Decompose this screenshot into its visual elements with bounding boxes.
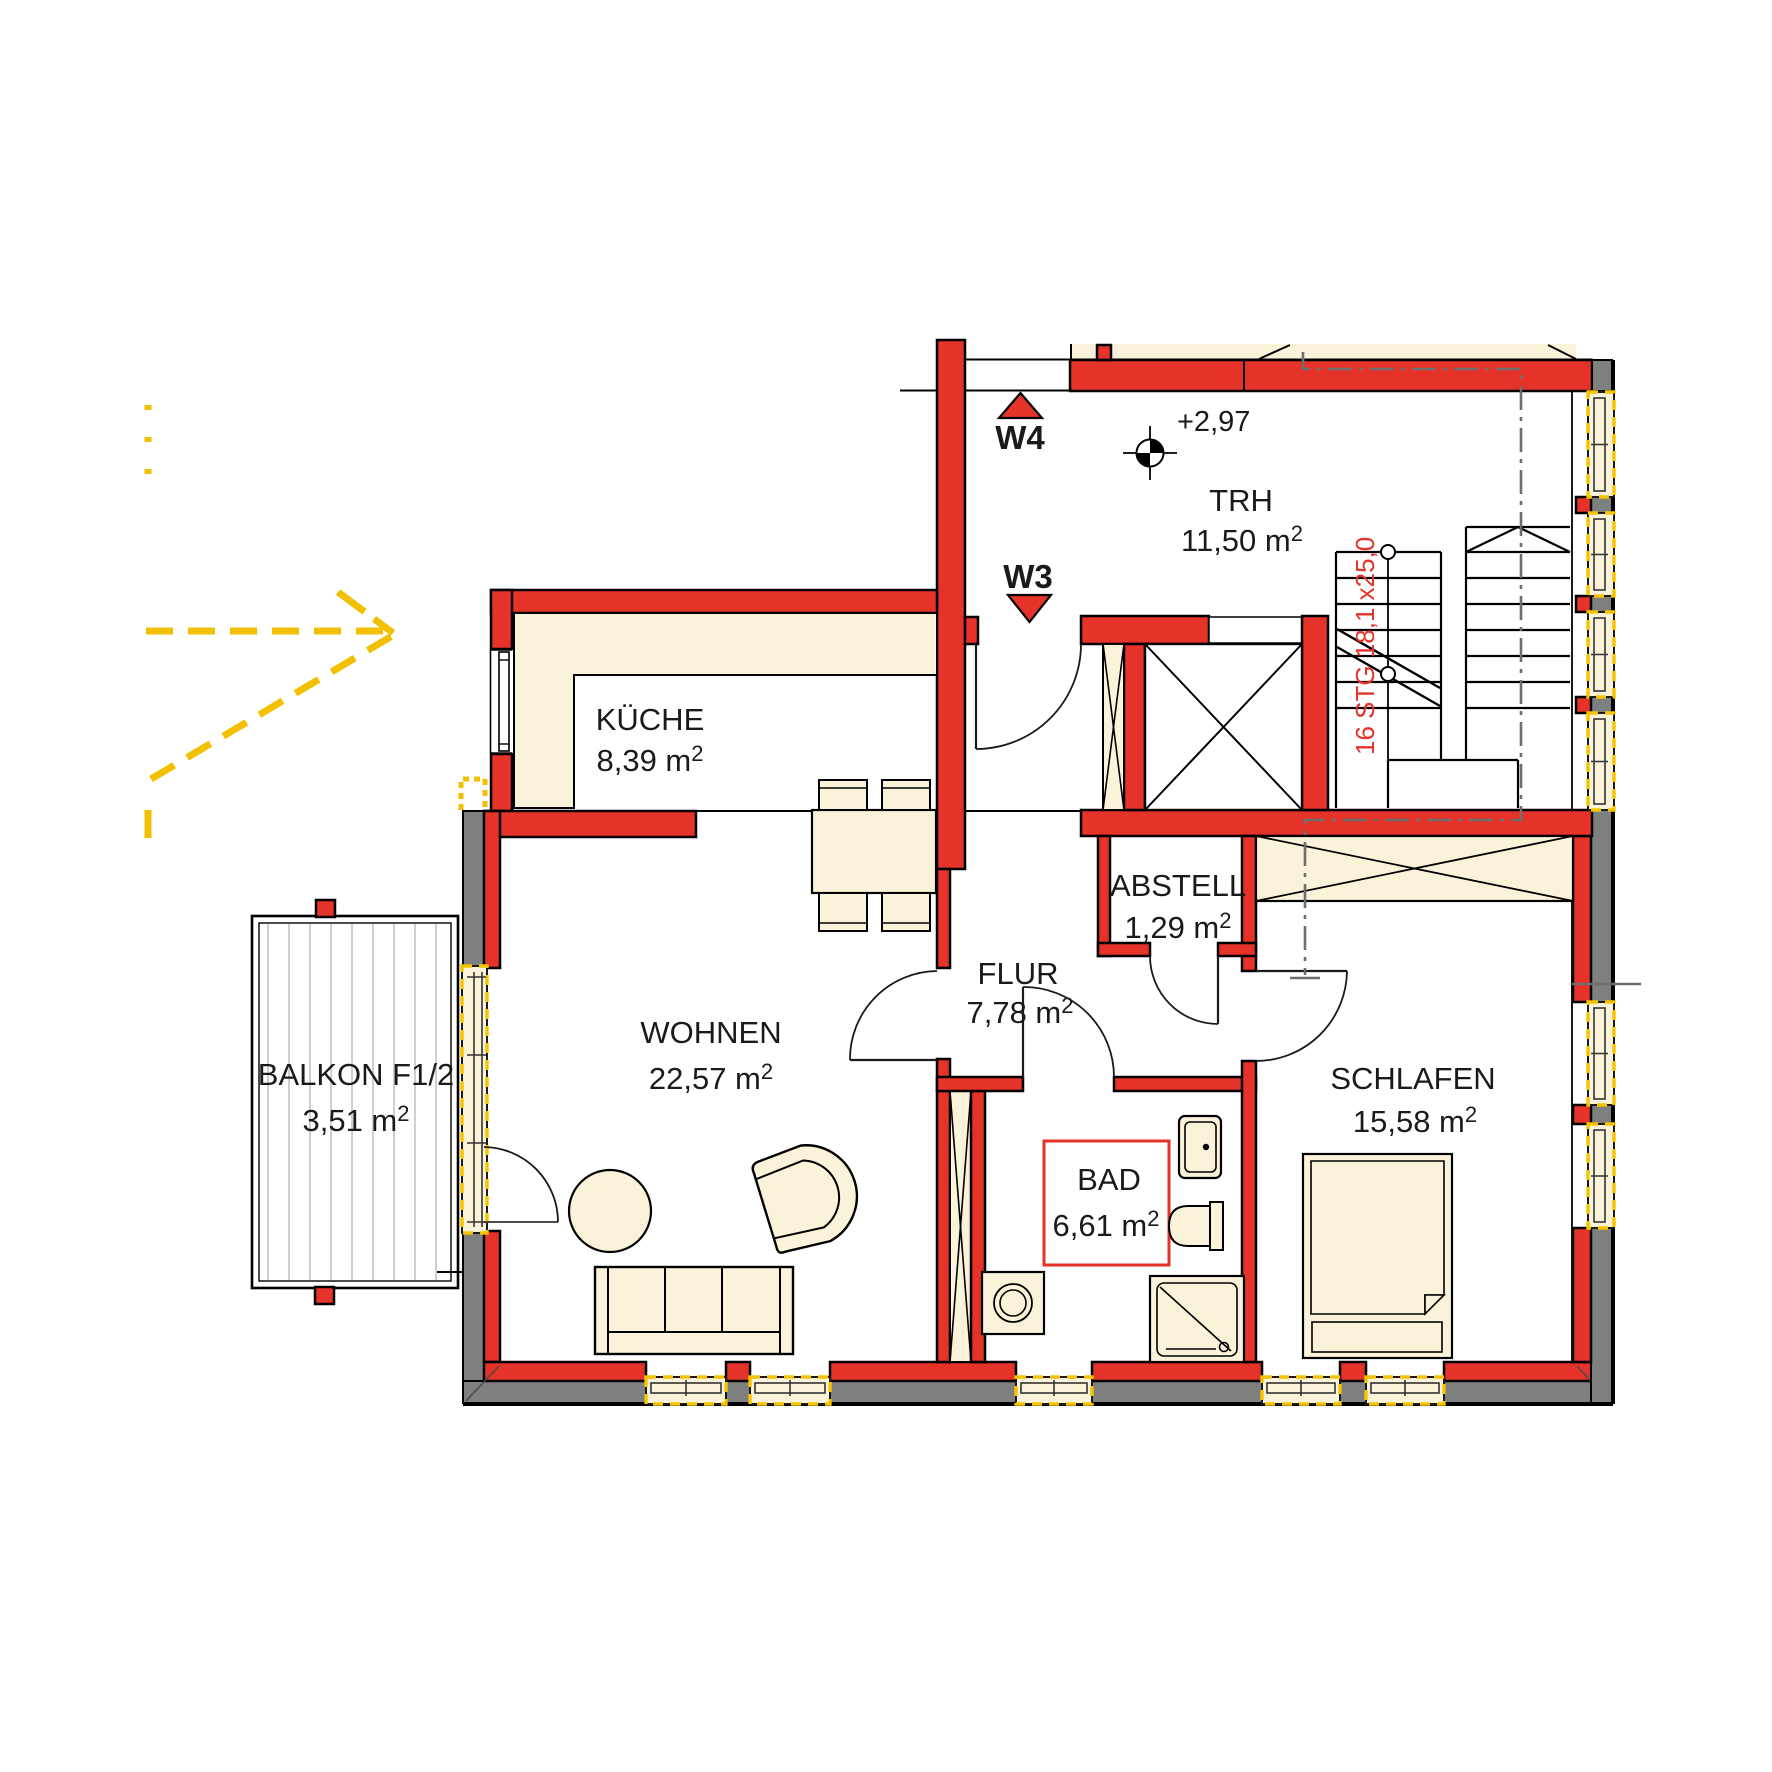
svg-text:WOHNEN: WOHNEN [640,1015,781,1050]
svg-text:1,29 m2: 1,29 m2 [1124,908,1231,945]
svg-text:3,51 m2: 3,51 m2 [302,1101,409,1138]
svg-text:11,50 m2: 11,50 m2 [1181,521,1303,558]
svg-text:KÜCHE: KÜCHE [596,702,705,737]
svg-text:TRH: TRH [1209,483,1273,518]
svg-text:7,78 m2: 7,78 m2 [966,993,1073,1030]
svg-text:16 STG 18,1 x25,0: 16 STG 18,1 x25,0 [1350,537,1380,755]
svg-text:15,58 m2: 15,58 m2 [1353,1102,1477,1139]
svg-text:FLUR: FLUR [978,956,1059,991]
svg-text:W4: W4 [995,419,1045,456]
svg-text:6,61 m2: 6,61 m2 [1052,1206,1159,1243]
svg-text:22,57 m2: 22,57 m2 [649,1059,773,1096]
svg-text:ABSTELL: ABSTELL [1110,868,1246,903]
svg-text:+2,97: +2,97 [1177,406,1250,438]
svg-text:8,39 m2: 8,39 m2 [596,741,703,778]
svg-text:SCHLAFEN: SCHLAFEN [1330,1061,1495,1096]
svg-text:W3: W3 [1003,558,1053,595]
svg-text:BALKON F1/2: BALKON F1/2 [258,1057,454,1092]
svg-text:BAD: BAD [1077,1162,1141,1197]
